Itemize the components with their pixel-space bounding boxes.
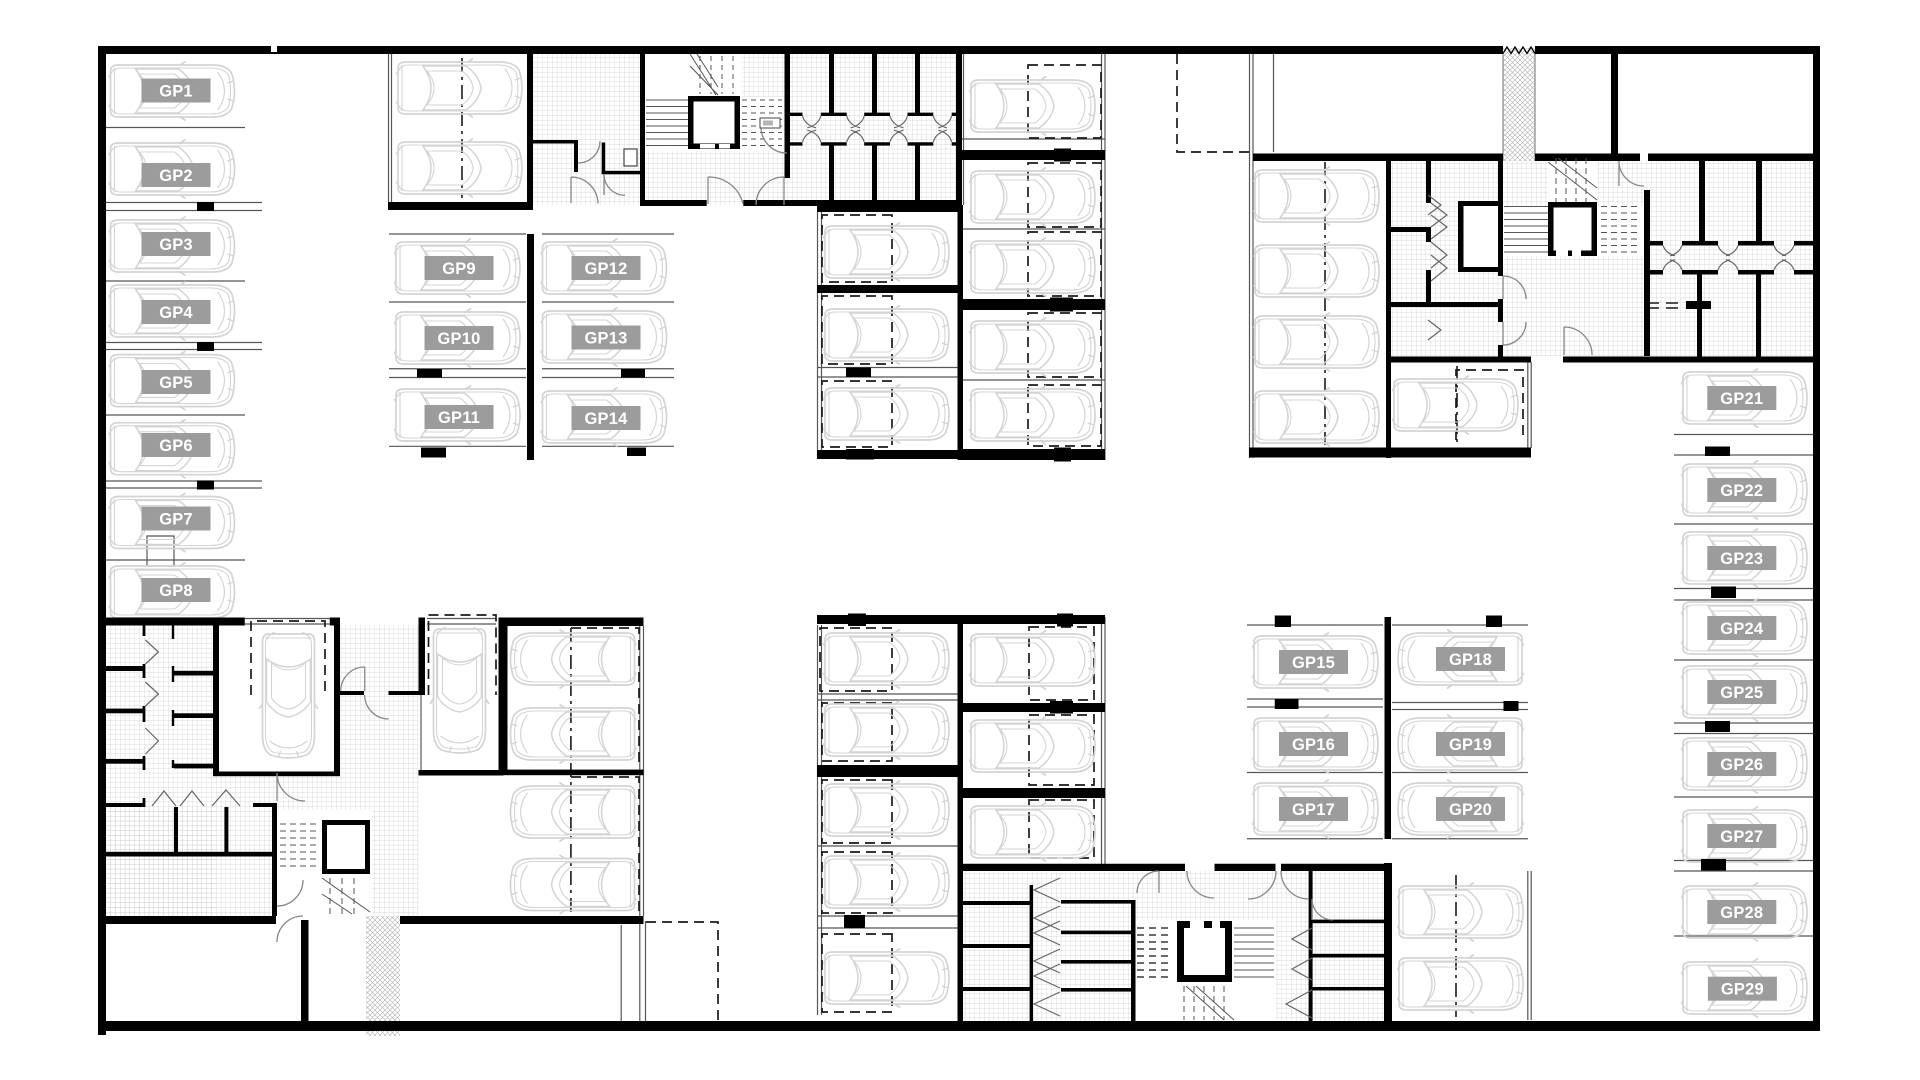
svg-text:GP17: GP17 <box>1292 801 1335 819</box>
svg-text:GP10: GP10 <box>438 330 481 348</box>
svg-text:GP4: GP4 <box>159 304 193 322</box>
svg-text:GP15: GP15 <box>1292 654 1335 672</box>
svg-text:GP9: GP9 <box>442 260 476 278</box>
svg-text:GP16: GP16 <box>1292 736 1335 754</box>
svg-text:GP29: GP29 <box>1721 981 1764 999</box>
svg-text:GP11: GP11 <box>438 409 480 427</box>
svg-text:GP27: GP27 <box>1720 828 1763 846</box>
svg-text:GP25: GP25 <box>1720 684 1763 702</box>
svg-text:GP20: GP20 <box>1449 801 1492 819</box>
svg-text:GP14: GP14 <box>585 410 629 428</box>
svg-text:GP24: GP24 <box>1720 620 1764 638</box>
svg-text:GP22: GP22 <box>1720 482 1763 500</box>
svg-text:GP21: GP21 <box>1720 390 1763 408</box>
svg-text:GP7: GP7 <box>159 511 193 529</box>
svg-text:GP8: GP8 <box>159 582 193 600</box>
svg-text:GP2: GP2 <box>159 167 193 185</box>
svg-text:GP3: GP3 <box>159 236 193 254</box>
svg-text:GP28: GP28 <box>1720 904 1763 922</box>
svg-text:GP5: GP5 <box>159 374 193 392</box>
svg-text:GP1: GP1 <box>159 83 193 101</box>
svg-text:GP18: GP18 <box>1449 651 1492 669</box>
svg-text:GP23: GP23 <box>1720 550 1763 568</box>
svg-text:GP6: GP6 <box>159 437 193 455</box>
svg-text:GP13: GP13 <box>585 330 628 348</box>
svg-text:GP12: GP12 <box>585 260 628 278</box>
svg-text:GP19: GP19 <box>1449 736 1492 754</box>
svg-text:GP26: GP26 <box>1720 756 1763 774</box>
